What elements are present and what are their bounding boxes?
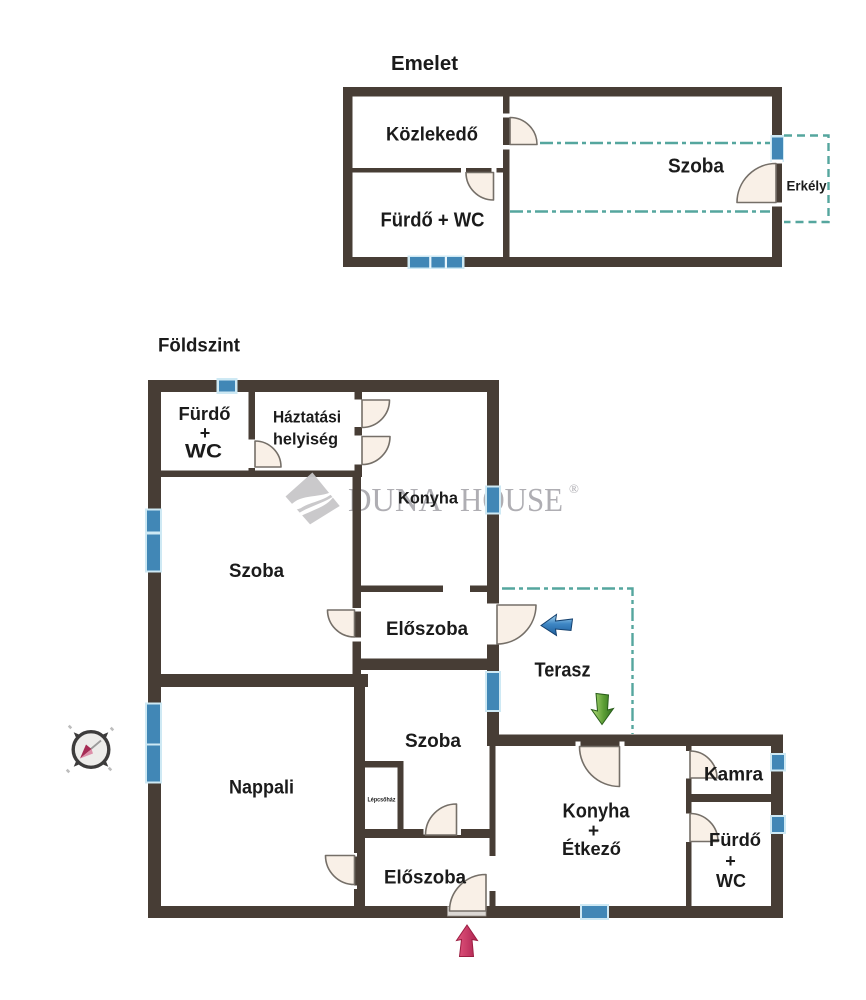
svg-text:HOUSE: HOUSE — [460, 482, 563, 519]
svg-text:Előszoba: Előszoba — [386, 618, 468, 640]
svg-text:Lépcsőház: Lépcsőház — [368, 797, 397, 804]
svg-text:helyiség: helyiség — [273, 430, 338, 449]
svg-text:+: + — [725, 851, 736, 871]
svg-text:WC: WC — [185, 442, 222, 463]
svg-text:Terasz: Terasz — [535, 660, 591, 682]
svg-text:Étkező: Étkező — [562, 838, 621, 859]
svg-text:Fürdő + WC: Fürdő + WC — [381, 209, 485, 232]
svg-text:Konyha: Konyha — [563, 801, 631, 823]
svg-text:Kamra: Kamra — [704, 765, 763, 786]
svg-text:Fürdő: Fürdő — [179, 404, 231, 424]
svg-text:Közlekedő: Közlekedő — [386, 124, 478, 146]
svg-text:Fürdő: Fürdő — [709, 830, 761, 850]
svg-text:Földszint: Földszint — [158, 336, 241, 357]
svg-text:Erkély: Erkély — [787, 178, 827, 194]
svg-text:Nappali: Nappali — [229, 777, 294, 799]
svg-text:Emelet: Emelet — [391, 53, 458, 75]
svg-text:Szoba: Szoba — [668, 156, 725, 178]
svg-text:Szoba: Szoba — [405, 730, 461, 752]
svg-text:Szoba: Szoba — [229, 561, 284, 582]
svg-text:®: ® — [569, 481, 579, 496]
svg-text:Előszoba: Előszoba — [384, 867, 466, 889]
svg-text:Háztatási: Háztatási — [273, 408, 341, 427]
svg-text:Konyha: Konyha — [398, 490, 459, 508]
svg-text:+: + — [200, 423, 211, 443]
svg-text:WC: WC — [716, 871, 746, 891]
